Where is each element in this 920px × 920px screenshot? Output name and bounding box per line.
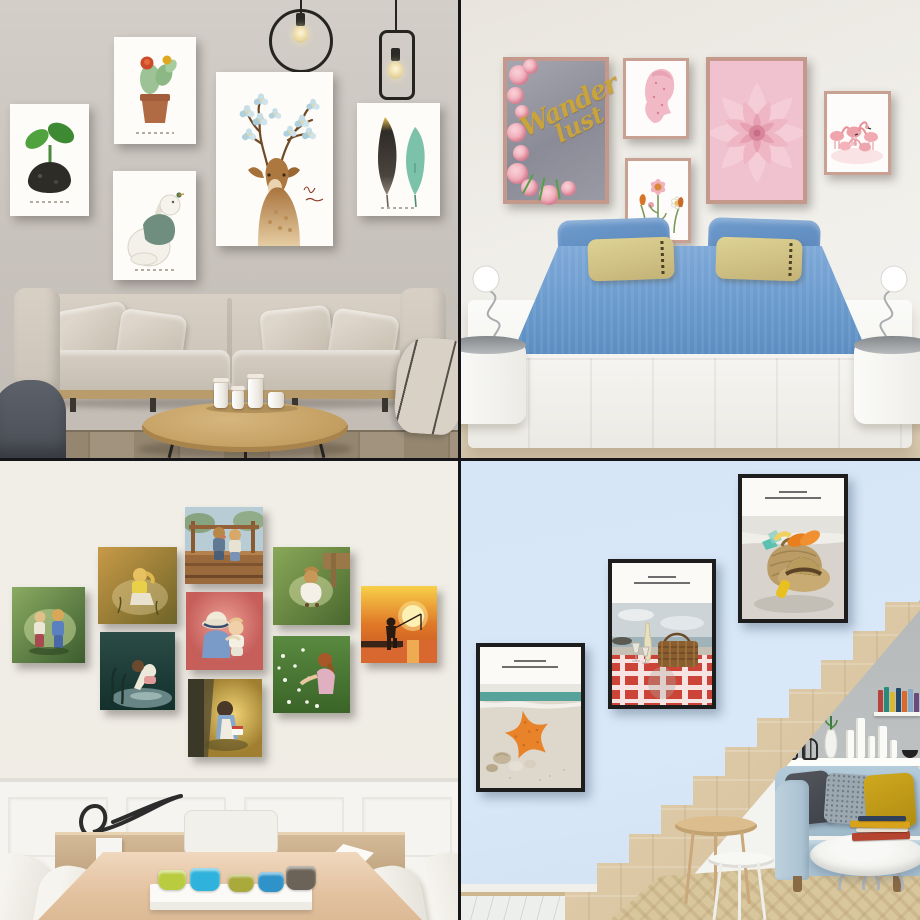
rose [507,87,524,104]
painting-girl-hat-baby [186,592,263,670]
painting-girl-amber [98,547,177,624]
poster-blossom-profile [623,58,689,139]
poster-beach-hat [738,474,848,623]
poster-bunny [113,171,196,280]
candle [878,726,887,758]
photo-staircase-room [460,460,920,920]
script-caption [381,207,417,209]
white-side-table [708,852,774,868]
candle [846,730,854,758]
script-caption [304,187,323,201]
caption-line [634,582,690,584]
painting-girl-white-dress [273,547,350,625]
platform-tufting [468,358,912,448]
beach-hat-photo [742,516,844,619]
navy-book [858,816,906,821]
painting-boy-fishing-sunset [361,586,437,663]
poster-cactus [114,37,196,144]
succulent-art [710,61,803,200]
sofa-leg [793,876,802,892]
bulb-socket [391,48,400,61]
rose [561,181,576,196]
sofa-seat-cushion [50,350,230,394]
glass-cup-olive [228,874,254,892]
rose [523,59,538,74]
bookshelf-books [878,686,920,714]
orange-tulip [640,194,646,205]
poster-picnic [608,559,716,709]
picnic-photo [612,603,712,705]
flamingo-flock [830,122,878,151]
feathers-art [357,103,440,216]
grey-armchair [0,380,66,460]
glass-cup-cyan [190,868,220,891]
caption-line [779,491,807,493]
caption-line [648,576,676,578]
starfish-photo [480,684,581,788]
spiral-wire-lamp [466,262,524,346]
ceramic-jar [232,390,244,409]
pink-daisy [649,179,667,195]
collage-divider-horizontal [0,458,920,461]
poster-flamingos [824,91,891,175]
nightstand [854,340,920,424]
mini-shelf [874,712,920,716]
sofa-leg [382,398,388,412]
bunny-art [113,171,196,280]
glass-cup-blue [258,872,284,892]
ceramic-jar [248,378,263,408]
poster-deer [216,72,333,246]
bulb-socket [296,13,305,26]
glass-top [854,336,920,354]
caption-line [514,660,546,662]
nightstand [460,340,526,424]
painting-girl-pond [100,632,175,710]
yellow-book [850,820,910,828]
poster-room-collage: Wander lust [0,0,920,920]
poster-pink-succulent [706,57,807,204]
profile-art [626,61,686,136]
candle [868,736,875,758]
dining-chair-back [184,810,278,856]
caption-line [765,497,821,499]
cactus-art [114,37,196,144]
painting-toddlers-green [12,587,85,663]
ceramic-jar [214,382,228,408]
caption-line [502,666,558,668]
light-bulb [388,62,403,79]
wood-side-table [675,816,757,836]
photo-bedroom: Wander lust [460,0,920,460]
candle [890,740,897,758]
spiral-wire-lamp [856,262,914,346]
photo-living-room [0,0,460,460]
flamingos-art [827,94,888,172]
sofa-arm [14,288,60,394]
glass-top [460,336,526,354]
painting-girl-daisy-field [273,636,350,713]
sofa-leg [70,398,76,412]
painting-girl-reading-tree [188,679,262,757]
photo-dining-room [0,460,460,920]
khaki-pillow [715,237,802,282]
white-book [856,828,908,832]
sofa-leg [150,398,156,412]
glass-cup-lime [158,870,186,890]
script-caption [136,132,174,134]
poster-feathers [357,103,440,216]
pendant-cord [395,0,397,32]
glass-cup-smoke [286,866,316,890]
ceramic-bowl [268,392,284,408]
painting-kids-bridge [185,507,263,584]
rose [513,145,529,161]
poster-starfish [476,643,585,792]
sofa-arm [775,780,809,880]
table-leg [738,864,741,920]
sprout-art [10,104,89,216]
blue-mattress [512,246,868,354]
blossoms [240,93,320,140]
poster-wanderlust: Wander lust [503,57,609,204]
script-caption [135,269,175,271]
deer-art [216,72,333,246]
khaki-pillow [587,237,674,282]
script-caption [30,201,70,203]
light-bulb [293,26,308,43]
poster-sprout [10,104,89,216]
candle [856,718,865,758]
